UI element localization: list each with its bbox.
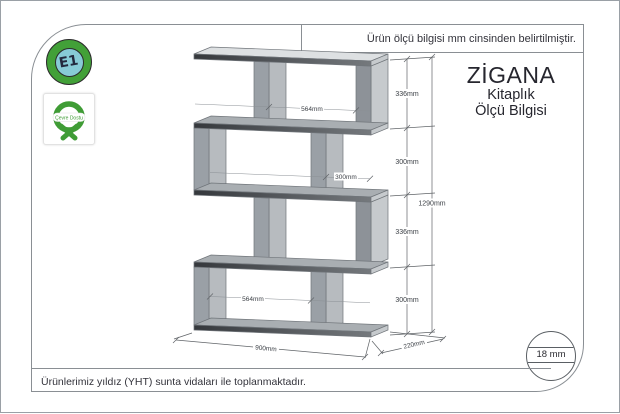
dim-total-width: 900mm bbox=[255, 344, 277, 353]
dim-section-3: 336mm bbox=[395, 229, 419, 236]
product-dimension-sheet: { "notes": { "top": "Ürün ölçü bilgisi m… bbox=[0, 0, 620, 413]
dim-section-1: 336mm bbox=[395, 91, 419, 98]
thickness-chord-bottom bbox=[526, 362, 576, 363]
dim-comp2-inner: 300mm bbox=[335, 174, 357, 181]
dim-comp4-inner: 564mm bbox=[242, 296, 264, 303]
material-thickness-label: 18 mm bbox=[527, 349, 575, 360]
dim-section-2: 300mm bbox=[395, 159, 419, 166]
bottom-note-text: Ürünlerimiz yıldız (YHT) sunta vidaları … bbox=[41, 376, 491, 388]
dim-comp1-inner: 564mm bbox=[301, 106, 323, 113]
dim-section-4: 300mm bbox=[395, 297, 419, 304]
bottom-divider-line bbox=[31, 368, 551, 369]
thickness-chord-top bbox=[526, 347, 576, 348]
material-thickness-symbol: 18 mm bbox=[526, 331, 576, 381]
dim-total-height: 1290mm bbox=[418, 201, 445, 208]
